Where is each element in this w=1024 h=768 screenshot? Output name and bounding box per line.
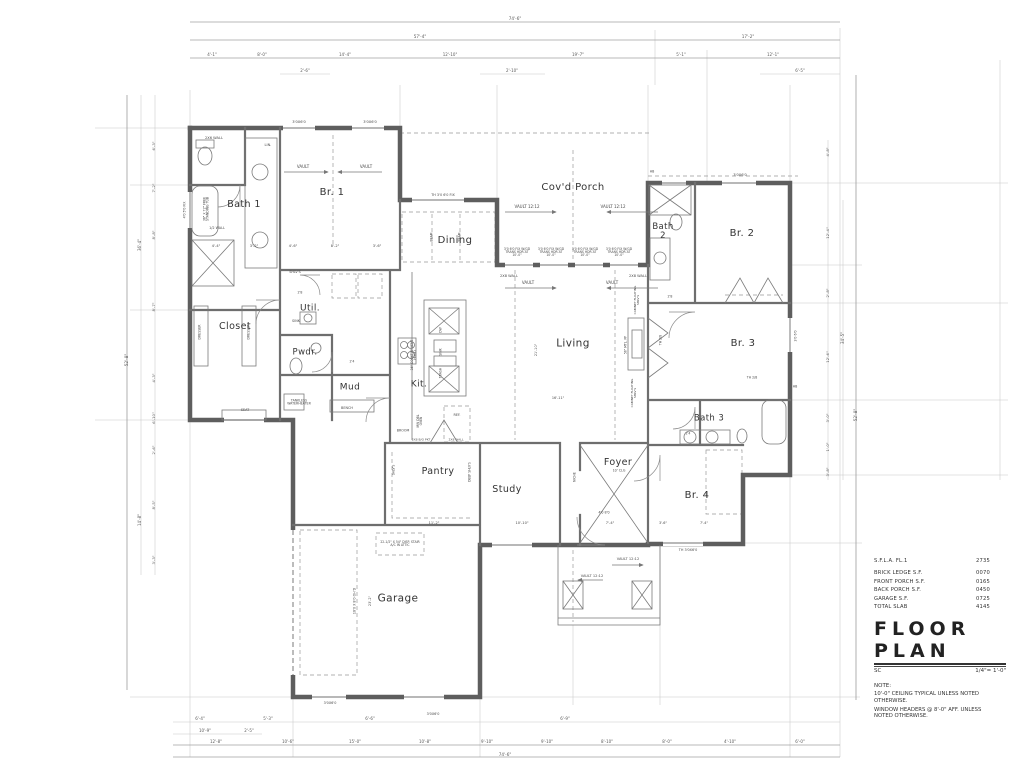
dimension-label: 2'-8"	[826, 289, 830, 298]
annotation: 56" MTL. FP	[624, 336, 627, 354]
area-label: S.F.L.A. FL.1	[874, 558, 907, 564]
note-heading: NOTE:	[874, 683, 1014, 689]
dimension-label: 2'-6"	[300, 69, 309, 73]
area-label: BRICK LEDGE S.F.	[874, 570, 922, 576]
annotation: 3'0X6'0	[733, 174, 747, 178]
dimension-label: 9'-10"	[481, 740, 493, 744]
annotation: REF.	[454, 414, 461, 418]
annotation: CABINET FLOATING SHLV'S	[631, 376, 637, 410]
dimension-label: 9'-10"	[541, 740, 553, 744]
annotation: 3'0 6'0	[794, 330, 797, 341]
annotation: BEAM	[458, 233, 461, 242]
annotation: 4'-4"	[212, 245, 221, 249]
annotation: 3'-6"	[659, 522, 667, 526]
area-value: 0070	[976, 570, 990, 576]
area-value: 0450	[976, 587, 990, 593]
annotation: TRASH	[439, 368, 442, 378]
dimension-label: 8'-8"	[152, 231, 156, 240]
annotation: TH 2/8	[659, 335, 662, 346]
annotation: 4'0 8'0	[598, 511, 609, 514]
annotation: 7'-4"	[700, 522, 708, 526]
dimension-label: 17'-2"	[742, 35, 755, 39]
dimension-label: 74'-6"	[509, 17, 522, 21]
area-value: 0725	[976, 596, 990, 602]
room-label-pantry: Pantry	[422, 467, 455, 477]
dimension-label: 12'-8"	[210, 740, 222, 744]
room-label-bath-3: Bath 3	[694, 415, 724, 424]
annotation: 16'-11"	[552, 397, 564, 401]
annotation: SINK	[439, 348, 442, 355]
area-label: FRONT PORCH S.F.	[874, 579, 925, 585]
dimension-label: 12'-4"	[826, 227, 830, 238]
dimension-label: 15'-0"	[349, 740, 361, 744]
note-line: WINDOW HEADERS @ 8'-0" AFF. UNLESS NOTED…	[874, 707, 994, 720]
dimension-label: 6'-3"	[152, 142, 156, 151]
annotation: 21'-10"	[535, 344, 539, 356]
annotation: SHLV'S	[392, 465, 395, 476]
note-line: 10'-0" CEILING TYPICAL UNLESS NOTED OTHE…	[874, 691, 994, 704]
annotation: 3'0 6'0 FIX W/GD TRANS HDR AT 10'-0"	[605, 248, 633, 258]
area-table-row: BRICK LEDGE S.F.0070	[874, 570, 990, 576]
dimension-label: 4'-1"	[207, 53, 216, 57]
room-label-br-3: Br. 3	[731, 339, 756, 350]
room-label-br-2: Br. 2	[730, 229, 755, 240]
drawing-scale: 1/4"= 1'-0"	[975, 668, 1006, 674]
dimension-label: 5'-3"	[263, 717, 272, 721]
area-label: TOTAL SLAB	[874, 604, 908, 610]
annotation: 2X8 WALL	[448, 438, 463, 441]
annotation: BROOM	[397, 429, 410, 432]
annotation: TH 3'0X6'0	[679, 549, 698, 553]
annotation: VAULT 12:12	[581, 575, 604, 579]
annotation: 4'0 5'0 FIX	[183, 202, 186, 219]
title-block: S.F.L.A. FL.12735BRICK LEDGE S.F.0070FRO…	[874, 558, 1014, 720]
annotation: VAULT	[297, 165, 309, 169]
dimension-label: 6'-4"	[195, 717, 204, 721]
dimension-label: 8'-0"	[662, 740, 671, 744]
annotation: 18'0 X 8'0 OH'D	[353, 588, 356, 614]
dimension-label: 2'-6"	[152, 446, 156, 455]
dimension-label: 8'-7"	[152, 303, 156, 312]
annotation: TANKLESS WATERHEATER	[283, 400, 315, 407]
dimension-label: 57'-4"	[414, 35, 427, 39]
area-label: BACK PORCH S.F.	[874, 587, 921, 593]
dimension-label: 12'-6"	[826, 351, 830, 362]
room-label-bath-1: Bath 1	[227, 200, 261, 210]
annotation: 2X6 WALL	[205, 137, 223, 141]
annotation: HB	[793, 385, 798, 388]
dimension-lines	[127, 22, 856, 757]
dimension-label: 6'-9"	[560, 717, 569, 721]
floorplan-drawing	[0, 0, 1024, 768]
annotation: 10' CLG	[613, 469, 626, 472]
annotation: 2'4	[686, 432, 691, 435]
dimension-label: 8'-5"	[152, 501, 156, 510]
dimension-label: 6'-6"	[365, 717, 374, 721]
room-label-dining: Dining	[438, 236, 473, 247]
dimension-label: 6'-0"	[795, 740, 804, 744]
annotation: 3'0 6'0 FIX W/GD TRANS HDR AT 10'-0"	[503, 248, 531, 258]
dimension-label: 6'-5"	[795, 69, 804, 73]
dimension-label: 19'-7"	[572, 53, 584, 57]
annotation: VAULT	[522, 281, 534, 285]
annotation: 11'-2"	[429, 522, 440, 526]
annotation: 2X8 WALL	[629, 275, 647, 279]
annotation: TH 3'0 6'0 FIX	[431, 194, 455, 198]
dimension-label: 10'-8"	[419, 740, 431, 744]
dimension-label: 52'-8"	[854, 409, 858, 422]
annotation: 36" COOKTOP VENT HOOD	[411, 337, 417, 373]
annotation: 23'-2"	[369, 596, 373, 606]
annotation: 3'0 6'0 FIX W/GD TRANS HDR AT 10'-0"	[537, 248, 565, 258]
area-value: 0165	[976, 579, 990, 585]
annotation: BENCH	[341, 407, 353, 411]
room-label-mud: Mud	[340, 383, 360, 392]
dimension-label: 4'-3"	[152, 374, 156, 383]
dimension-label: 36'-4"	[138, 239, 142, 251]
annotation: 3'-2"	[250, 245, 259, 249]
dimension-label: 52'-8"	[125, 354, 129, 367]
room-label-br-1: Br. 1	[320, 188, 345, 199]
annotation: SEAT	[241, 409, 249, 413]
annotation: CABINET FLOATING SHLV'S	[634, 283, 640, 317]
dimension-label: 2'-10"	[506, 69, 518, 73]
annotation: 7'-4"	[606, 522, 615, 526]
room-label-bath-2: Bath 2	[650, 223, 676, 241]
annotation: LIN.	[265, 144, 272, 148]
dimension-label: 4'-8"	[826, 148, 830, 157]
dimension-label: 3'-0"	[826, 414, 830, 423]
dimension-label: 14'-4"	[339, 53, 351, 57]
annotation: 3'-6"	[373, 245, 382, 249]
room-label-study: Study	[492, 485, 521, 495]
annotation: SHLV'S	[289, 271, 301, 275]
area-label: GARAGE S.F.	[874, 596, 908, 602]
dimension-label: 5'-1"	[676, 53, 685, 57]
annotation: 1/2 WALL	[209, 227, 225, 231]
area-value: 4145	[976, 604, 990, 610]
annotation: DRESSER	[247, 325, 250, 340]
annotation: DRESSER	[198, 325, 201, 340]
dimension-label: 12'-1"	[767, 53, 779, 57]
dimension-label: 10'-6"	[282, 740, 294, 744]
room-label-cov-d-porch: Cov'd Porch	[541, 183, 604, 194]
annotation: 22-1/2" X 54" DISP. STAIR A/C IN ATTIC	[380, 541, 420, 547]
room-label-pwdr: Pwdr.	[293, 349, 318, 358]
area-table-row: TOTAL SLAB4145	[874, 604, 990, 610]
room-label-kit: Kit.	[411, 380, 427, 389]
annotation: TH 2/8	[747, 376, 758, 379]
annotation: 2'8	[298, 291, 303, 294]
annotation: 3'0X6'0	[427, 713, 440, 717]
annotation: 2X8 WALL	[500, 275, 518, 279]
notes: 10'-0" CEILING TYPICAL UNLESS NOTED OTHE…	[874, 691, 1014, 719]
interior-walls	[190, 128, 790, 545]
dimension-label: 2'-5"	[244, 729, 253, 733]
dimension-label: 3'-3"	[152, 556, 156, 565]
annotation: VAULT	[606, 281, 618, 285]
annotation: 2X8 B/O PKT	[412, 438, 431, 441]
annotation: VAULT 12:12	[617, 558, 640, 562]
area-table-row: BACK PORCH S.F.0450	[874, 587, 990, 593]
annotation: VAULT 12:12	[600, 205, 625, 209]
annotation: BEAM	[430, 233, 433, 242]
annotation: 2'4	[350, 360, 355, 363]
annotation: VAULT	[360, 165, 372, 169]
annotation: SINK	[292, 320, 300, 324]
dimension-label: 34'-5"	[841, 332, 845, 344]
sheet-code: SC	[874, 668, 881, 674]
annotation: 3'0X6'0	[292, 121, 306, 125]
floor-plan-sheet: Bath 1Br. 1Cov'd PorchBath 2Br. 2DiningC…	[0, 0, 1024, 768]
annotation: DEEP SHLV'S	[468, 462, 471, 482]
annotation: 4'-6"	[289, 245, 298, 249]
annotation: NICHE	[573, 472, 576, 482]
annotation: 3'0X6'0	[363, 121, 377, 125]
area-value: 2735	[976, 558, 990, 564]
area-table-row: GARAGE S.F.0725	[874, 596, 990, 602]
area-table-row: FRONT PORCH S.F.0165	[874, 579, 990, 585]
dimension-label: 8'-0"	[257, 53, 266, 57]
annotation: DW	[439, 327, 442, 332]
room-label-garage: Garage	[378, 593, 419, 604]
annotation: 8'-2"	[331, 245, 340, 249]
room-label-living: Living	[556, 338, 590, 349]
annotation: MW DBL OVEN	[417, 411, 423, 431]
annotation: HB	[650, 170, 655, 173]
room-label-br-4: Br. 4	[685, 491, 710, 502]
dimension-label: 12'-10"	[443, 53, 458, 57]
dimension-label: 4'-10"	[724, 740, 736, 744]
dimension-label: 14'-8"	[138, 514, 142, 526]
annotation: 3'0 6'0 FIX W/GD TRANS HDR AT 10'-0"	[571, 248, 599, 258]
extension-lines	[95, 22, 1008, 757]
dimension-label: 74'-6"	[499, 753, 512, 757]
roof-dashed-lines	[300, 133, 798, 675]
area-table: S.F.L.A. FL.12735BRICK LEDGE S.F.0070FRO…	[874, 558, 1014, 610]
annotation: 10'-10"	[515, 522, 528, 526]
room-label-util: Util.	[300, 304, 320, 313]
dimension-label: 6'-10"	[152, 412, 156, 423]
room-label-foyer: Foyer	[604, 458, 632, 468]
dimension-label: 7'-2"	[152, 184, 156, 193]
dimension-label: 3'-8"	[826, 468, 830, 477]
annotation: 3'0X6'0	[324, 702, 337, 706]
dimension-label: 1'-0"	[826, 443, 830, 452]
drawing-title: FLOOR PLAN	[874, 618, 1006, 665]
dimension-label: 8'-10"	[601, 740, 613, 744]
dimension-label: 10'-9"	[199, 729, 211, 733]
annotation: 36" X 72" FREE STANDING TUB	[204, 192, 211, 226]
area-table-row: S.F.L.A. FL.12735	[874, 558, 990, 564]
annotation: VAULT 12:12	[514, 205, 539, 209]
annotation: 2'8	[668, 295, 673, 298]
